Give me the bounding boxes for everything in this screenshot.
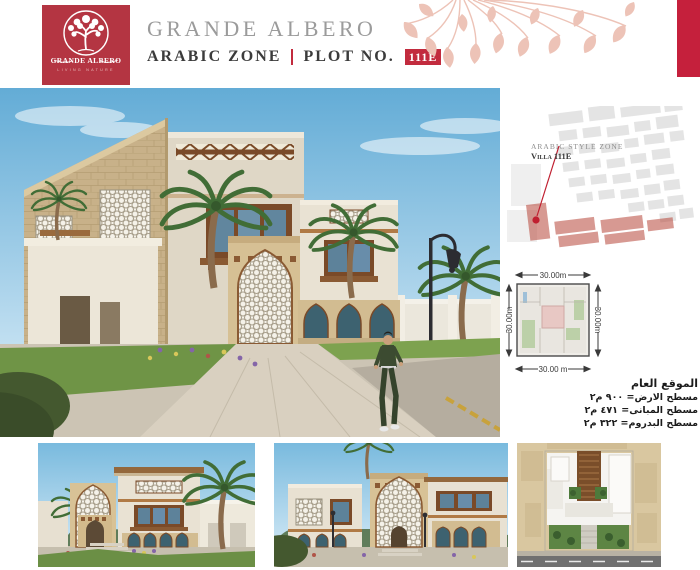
page-title: GRANDE ALBERO — [147, 16, 376, 42]
zone-label: ARABIC ZONE — [147, 48, 281, 66]
plot-no-label: PLOT NO. — [303, 48, 394, 66]
arch-facade — [70, 483, 116, 547]
plot-dimensions-diagram: 30.00m 30.00m 30.00m 30.00 m — [504, 262, 616, 377]
logo-name: GRANDE ALBERO — [51, 56, 122, 65]
sidewalk — [517, 551, 661, 556]
aerial-roof-plan — [517, 443, 661, 567]
master-plan-map: ARABIC STYLE ZONE Villa 111E — [505, 106, 698, 258]
plot-plan-preview — [520, 287, 586, 353]
dim-bottom: 30.00 m — [539, 365, 568, 374]
map-zone-label: ARABIC STYLE ZONE — [531, 142, 623, 151]
basement-area-line: مسطح البدروم= ٣٢٢ م٢ — [540, 417, 698, 430]
villa-exterior-render — [0, 88, 500, 437]
map-villa-label: Villa 111E — [531, 151, 571, 161]
garden — [549, 525, 629, 549]
dim-top: 30.00m — [540, 271, 567, 280]
arch-lattice — [238, 250, 292, 344]
brochure-page: GRANDE ALBERO LIVING NATURE GRANDE ALBER… — [0, 0, 700, 570]
central-portal — [370, 473, 428, 547]
master-plan-blocks — [505, 106, 698, 258]
dim-left: 30.00m — [505, 306, 514, 333]
dim-right: 30.00m — [593, 307, 602, 334]
side-wing — [200, 500, 255, 547]
right-wing — [424, 477, 508, 547]
leaf-ornament-icon — [398, 0, 643, 76]
elevation-render-2 — [274, 443, 508, 567]
arch-portal — [228, 236, 302, 344]
entry-shadow — [60, 296, 90, 344]
land-area-line: مسطح الارض= ٩٠٠ م٢ — [540, 391, 698, 404]
red-accent-bar — [677, 0, 700, 77]
tree-logo-icon: GRANDE ALBERO LIVING NATURE — [42, 5, 130, 85]
brand-logo: GRANDE ALBERO LIVING NATURE — [42, 5, 130, 85]
elevation-render-1 — [38, 443, 255, 567]
location-info-block: الموقع العام مسطح الارض= ٩٠٠ م٢ مسطح الم… — [540, 377, 698, 430]
logo-tagline: LIVING NATURE — [57, 68, 114, 72]
building-area-line: مسطح المبانى= ٤٧١ م٢ — [540, 404, 698, 417]
ground — [0, 338, 500, 437]
left-wing — [288, 484, 362, 547]
divider-bar — [291, 49, 293, 65]
main-facade — [114, 467, 204, 547]
villa-location-marker — [532, 216, 539, 223]
left-building — [24, 230, 162, 344]
road — [517, 556, 661, 567]
location-heading: الموقع العام — [540, 377, 698, 391]
